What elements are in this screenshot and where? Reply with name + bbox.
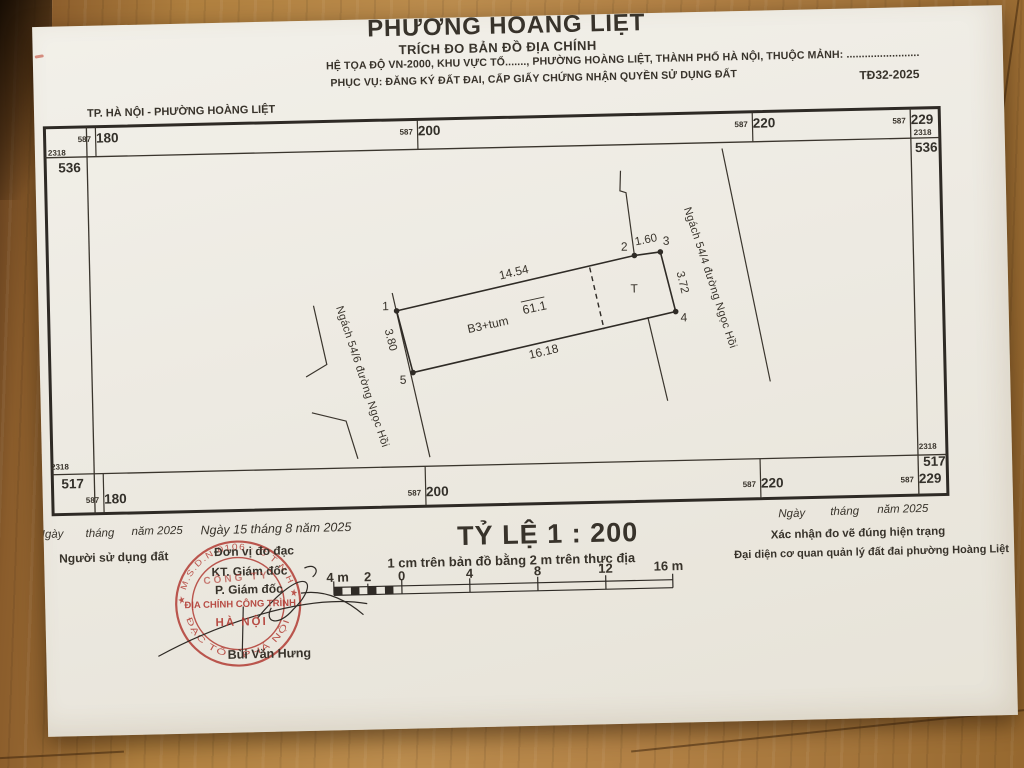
grid-prefix: 587	[734, 120, 748, 129]
center-date: Ngày 15 tháng 8 năm 2025	[200, 520, 351, 537]
sheet-code: TĐ32-2025	[859, 67, 919, 82]
grid-value: 229	[919, 471, 942, 487]
parcel-divider-dashed	[590, 267, 604, 329]
grid-label-top-229: 587229	[892, 112, 933, 128]
scale-bar	[334, 574, 673, 596]
grid-value: 200	[426, 484, 449, 500]
stamp-line1: ĐỊA CHÍNH CÔNG TRÌNH	[184, 598, 296, 612]
street-label-ngach-54-4: Ngách 54/4 đường Ngọc Hồi	[681, 206, 739, 350]
right-date-ngay: Ngày	[778, 508, 805, 521]
building-label: B3+tum	[466, 314, 510, 337]
grid-label-bottom-229: 587229	[900, 471, 941, 487]
grid-prefix: 587	[900, 475, 914, 484]
parcel-area: 61.1	[521, 296, 549, 319]
vertex-label-2: 2	[621, 240, 628, 254]
grid-value: 180	[96, 130, 119, 146]
street-label-ngach-54-6: Ngách 54/6 đường Ngọc Hồi	[333, 305, 391, 449]
grid-label-right-2318-top: 2318	[914, 128, 932, 137]
right-date-nam: năm 2025	[877, 503, 928, 516]
grid-label-left-517: 517	[61, 476, 84, 492]
scale-tick-8: 8	[534, 563, 542, 578]
document-content: PHƯỜNG HOÀNG LIỆT TRÍCH ĐO BẢN ĐỒ ĐỊA CH…	[32, 5, 1018, 737]
left-date-ngay: Ngày	[36, 529, 63, 542]
edge-length-3-80: 3.80	[382, 328, 399, 353]
grid-prefix: 587	[743, 480, 757, 489]
vertex-label-1: 1	[382, 299, 389, 313]
edge-length-3-72: 3.72	[674, 270, 691, 295]
grid-value: 229	[911, 112, 934, 128]
photo-of-cadastral-document: { "header": { "title": "PHƯỜNG HOÀNG LIỆ…	[0, 0, 1024, 768]
grid-label-left-2318-bottom: 2318	[51, 462, 69, 471]
stamp-line2: HÀ NỘI	[215, 616, 268, 629]
scale-tick-4m: 4 m	[326, 570, 349, 586]
grid-label-bottom-220: 587220	[742, 475, 783, 491]
grid-label-top-220: 587220	[734, 115, 775, 131]
grid-prefix: 587	[892, 116, 906, 125]
grid-prefix: 587	[399, 127, 413, 136]
grid-ticks	[95, 113, 761, 513]
grid-label-bottom-200: 587200	[408, 484, 449, 500]
left-date-thang: tháng	[85, 527, 114, 540]
vertex-label-5: 5	[400, 373, 407, 387]
map-area-label: TP. HÀ NỘI - PHƯỜNG HOÀNG LIỆT	[87, 104, 275, 120]
grid-label-top-180: 587180	[77, 130, 118, 146]
center-org: Đơn vị đo đạc	[214, 543, 294, 559]
grid-prefix: 587	[78, 135, 92, 144]
scale-bar-checker	[334, 586, 394, 595]
grid-label-top-200: 587200	[399, 123, 440, 139]
purpose-line: PHỤC VỤ: ĐĂNG KÝ ĐẤT ĐAI, CẤP GIẤY CHỨNG…	[330, 68, 737, 89]
vertex-label-3: 3	[663, 234, 670, 248]
red-pen-mark	[35, 54, 44, 58]
grid-prefix: 587	[86, 496, 100, 505]
grid-value: 220	[753, 115, 776, 131]
edge-length-14-54: 14.54	[498, 262, 530, 283]
scale-tick-0: 0	[398, 568, 406, 583]
page-title: PHƯỜNG HOÀNG LIỆT	[367, 9, 646, 43]
vertex-label-4: 4	[680, 310, 687, 324]
grid-value: 180	[104, 491, 127, 507]
scale-title: TỶ LỆ 1 : 200	[457, 517, 639, 552]
grid-value: 220	[761, 475, 784, 491]
signer-name: Bùi Văn Hưng	[228, 646, 312, 662]
scale-tick-12: 12	[598, 561, 613, 576]
edge-length-1-60: 1.60	[634, 232, 658, 248]
grid-label-right-517: 517	[923, 453, 946, 469]
scale-tick-2: 2	[364, 569, 372, 584]
right-agency-line: Đại diện cơ quan quản lý đất đai phường …	[734, 543, 1009, 561]
right-date-thang: tháng	[830, 505, 859, 518]
left-date-nam: năm 2025	[131, 525, 182, 538]
grid-label-right-536: 536	[915, 140, 938, 156]
map-frame-inner	[44, 108, 948, 515]
scale-tick-4: 4	[466, 566, 474, 581]
parcel-area-value: 61.1	[521, 296, 548, 317]
map-frame-outer	[44, 108, 948, 515]
edge-length-16-18: 16.18	[527, 341, 559, 362]
grid-label-left-536: 536	[58, 160, 81, 176]
grid-value: 200	[418, 123, 441, 139]
grid-prefix: 587	[408, 488, 422, 497]
t-section-label: T	[630, 281, 638, 295]
grid-label-right-2318-bottom: 2318	[919, 442, 937, 451]
wood-seam	[0, 751, 124, 760]
left-role: Người sử dụng đất	[59, 549, 169, 565]
scale-tick-16m: 16 m	[653, 558, 683, 574]
grid-label-bottom-180: 587180	[86, 491, 127, 507]
grid-label-left-2318-top: 2318	[48, 148, 66, 157]
right-confirm-line: Xác nhận đo vẽ đúng hiện trạng	[771, 526, 946, 542]
document-paper: PHƯỜNG HOÀNG LIỆT TRÍCH ĐO BẢN ĐỒ ĐỊA CH…	[32, 5, 1018, 737]
